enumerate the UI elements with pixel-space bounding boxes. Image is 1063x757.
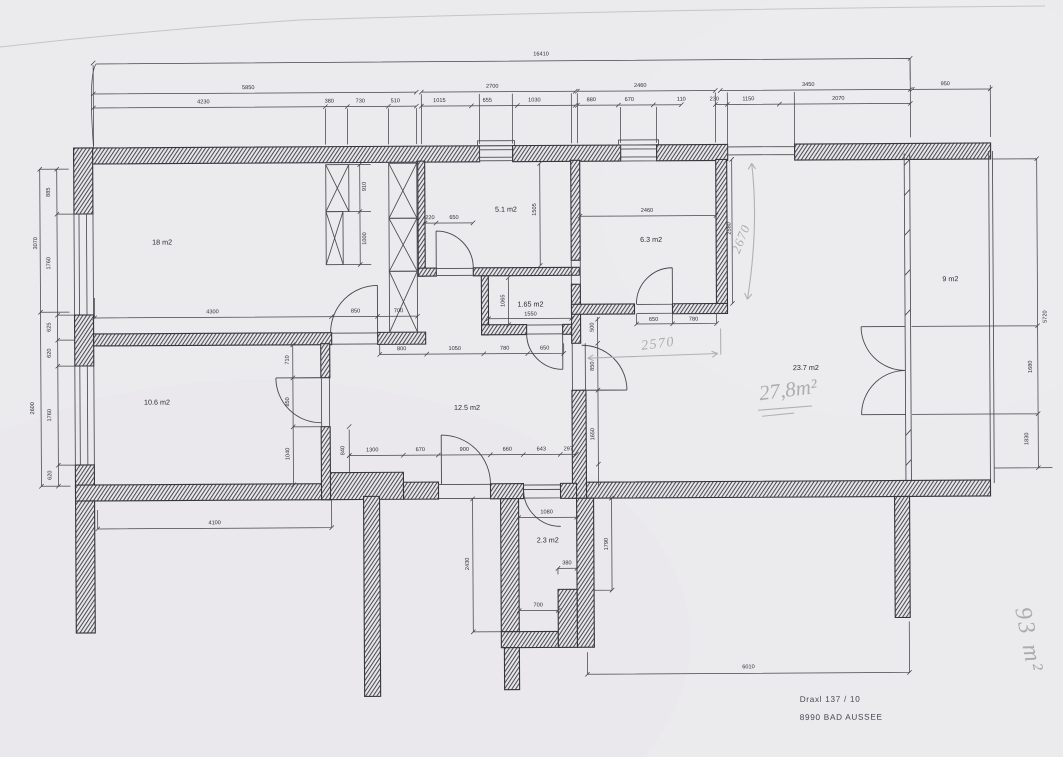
svg-text:2700: 2700 (486, 84, 498, 90)
svg-text:6010: 6010 (742, 664, 754, 670)
svg-text:2600: 2600 (30, 402, 36, 414)
svg-text:1830: 1830 (1024, 433, 1030, 445)
svg-text:850: 850 (285, 397, 291, 406)
svg-text:1150: 1150 (742, 96, 754, 102)
svg-text:12.5 m2: 12.5 m2 (454, 403, 480, 412)
svg-text:1300: 1300 (366, 447, 378, 453)
svg-text:Draxl 137 / 10: Draxl 137 / 10 (800, 695, 861, 704)
svg-text:840: 840 (340, 446, 346, 455)
svg-text:700: 700 (533, 602, 542, 608)
svg-text:5720: 5720 (1043, 310, 1049, 322)
svg-text:3450: 3450 (802, 82, 814, 88)
svg-text:230: 230 (710, 96, 719, 102)
svg-text:1760: 1760 (46, 257, 52, 269)
svg-text:1505: 1505 (532, 203, 538, 215)
svg-text:4100: 4100 (208, 520, 220, 526)
svg-text:3070: 3070 (33, 237, 39, 249)
svg-text:650: 650 (649, 317, 658, 323)
svg-text:297: 297 (564, 446, 573, 452)
svg-text:780: 780 (689, 317, 698, 323)
svg-text:1015: 1015 (433, 98, 445, 104)
svg-text:2070: 2070 (832, 96, 844, 102)
svg-text:10.6 m2: 10.6 m2 (144, 398, 170, 407)
svg-text:655: 655 (483, 98, 492, 104)
svg-text:8990 BAD AUSSEE: 8990 BAD AUSSEE (800, 713, 883, 722)
svg-text:900: 900 (460, 447, 469, 453)
svg-text:1040: 1040 (285, 448, 291, 460)
svg-text:500: 500 (590, 323, 596, 332)
svg-text:625: 625 (47, 323, 53, 332)
svg-text:730: 730 (356, 98, 365, 104)
svg-text:510: 510 (391, 98, 400, 104)
svg-text:780: 780 (500, 346, 509, 352)
svg-text:380: 380 (325, 99, 334, 105)
svg-text:650: 650 (449, 215, 458, 221)
svg-text:950: 950 (941, 81, 950, 87)
svg-text:1650: 1650 (590, 428, 596, 440)
svg-text:23.7 m2: 23.7 m2 (793, 363, 819, 372)
svg-text:4230: 4230 (197, 99, 209, 105)
svg-text:800: 800 (397, 346, 406, 352)
svg-text:2580: 2580 (727, 222, 733, 234)
svg-text:1030: 1030 (528, 97, 540, 103)
svg-text:9 m2: 9 m2 (942, 274, 958, 283)
svg-text:380: 380 (562, 560, 571, 566)
svg-text:670: 670 (416, 447, 425, 453)
svg-text:2460: 2460 (641, 208, 653, 214)
svg-text:5850: 5850 (242, 85, 254, 91)
svg-text:910: 910 (362, 182, 368, 191)
svg-text:700: 700 (394, 308, 403, 314)
svg-text:1050: 1050 (448, 346, 460, 352)
svg-text:2430: 2430 (465, 558, 471, 570)
svg-text:1000: 1000 (362, 232, 368, 244)
svg-text:1760: 1760 (47, 409, 53, 421)
svg-text:18 m2: 18 m2 (152, 238, 172, 247)
svg-text:850: 850 (351, 308, 360, 314)
svg-text:16410: 16410 (533, 51, 549, 57)
svg-text:850: 850 (590, 362, 596, 371)
svg-text:1790: 1790 (604, 538, 610, 550)
svg-text:885: 885 (46, 188, 52, 197)
svg-text:4300: 4300 (206, 309, 218, 315)
svg-text:880: 880 (587, 97, 596, 103)
svg-text:2460: 2460 (634, 83, 646, 89)
svg-text:1680: 1680 (1028, 361, 1034, 373)
svg-text:1.65 m2: 1.65 m2 (517, 299, 543, 308)
svg-text:110: 110 (677, 97, 686, 103)
svg-text:1065: 1065 (500, 294, 506, 306)
svg-text:643: 643 (537, 446, 546, 452)
svg-text:710: 710 (285, 355, 291, 364)
svg-text:2.3 m2: 2.3 m2 (537, 535, 559, 544)
svg-text:1550: 1550 (524, 312, 536, 318)
svg-text:660: 660 (503, 447, 512, 453)
svg-text:6.3 m2: 6.3 m2 (640, 235, 662, 244)
svg-text:5.1 m2: 5.1 m2 (495, 205, 517, 214)
svg-text:650: 650 (540, 345, 549, 351)
svg-text:620: 620 (47, 349, 53, 358)
svg-text:220: 220 (425, 215, 434, 221)
svg-text:620: 620 (47, 471, 53, 480)
svg-text:1080: 1080 (540, 509, 552, 515)
svg-text:670: 670 (625, 97, 634, 103)
